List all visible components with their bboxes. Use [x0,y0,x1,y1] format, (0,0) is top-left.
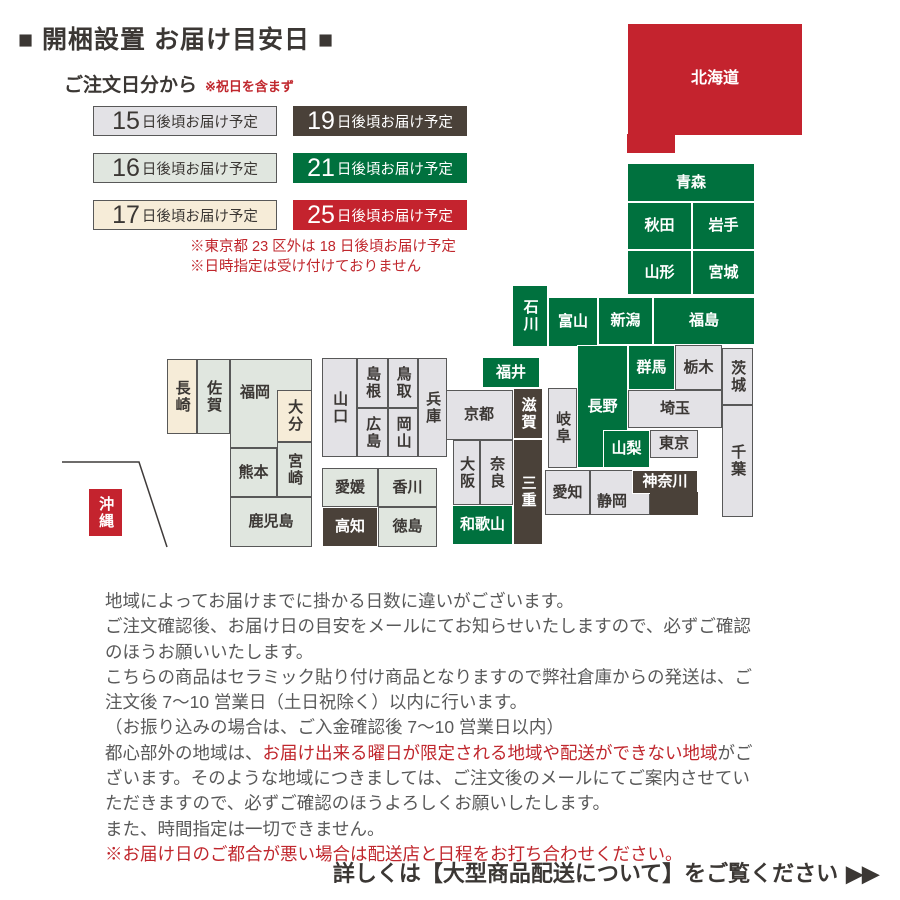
body-text-segment: （お振り込みの場合は、ご入金確認後 7～10 営業日以内） [105,717,564,737]
prefecture-label: 長野 [587,398,617,415]
prefecture-hokkaido-ext [627,134,675,153]
prefecture-saga: 佐賀 [197,359,230,434]
prefecture-aichi: 愛知 [545,470,590,515]
prefecture-ibaraki: 茨城 [722,348,753,405]
prefecture-yamanashi: 山梨 [603,430,650,468]
prefecture-gunma: 群馬 [628,345,675,390]
prefecture-label: 高知 [335,518,365,535]
prefecture-fukui: 福井 [482,357,540,388]
prefecture-label: 愛媛 [335,479,365,496]
prefecture-kagoshima: 鹿児島 [230,497,312,547]
body-line-4: こちらの商品はセラミック貼り付け商品となりますので弊社倉庫からの発送は、ご [105,665,805,690]
prefecture-label: 沖縄 [97,496,114,530]
prefecture-okinawa: 沖縄 [88,488,123,537]
prefecture-label: 宮崎 [286,453,303,487]
prefecture-label: 東京 [659,435,689,452]
prefecture-niigata: 新潟 [598,297,653,345]
prefecture-label: 三重 [519,475,536,509]
prefecture-label: 青森 [676,174,706,191]
body-text-segment: 地域によってお届けまでに掛かる日数に違いがございます。 [105,591,574,611]
prefecture-label: 愛知 [552,484,582,501]
prefecture-hokkaido: 北海道 [627,23,803,136]
prefecture-label: 山形 [644,264,674,281]
prefecture-nagasaki: 長崎 [167,359,197,434]
double-arrow-icon: ▶▶ [846,861,878,886]
prefecture-hyogo: 兵庫 [418,358,447,457]
body-line-9: ただきますので、必ずご確認のほうよろしくお願いしたします。 [105,791,805,816]
prefecture-label: 山梨 [611,440,641,457]
delivery-notes-paragraph: 地域によってお届けまでに掛かる日数に違いがございます。ご注文確認後、お届け日の目… [105,589,805,867]
prefecture-label: 北海道 [691,70,739,88]
prefecture-mie: 三重 [513,439,543,545]
prefecture-label: 佐賀 [205,380,222,414]
prefecture-label: 滋賀 [519,397,536,431]
prefecture-chiba: 千葉 [722,405,753,517]
prefecture-label: 徳島 [392,518,422,535]
prefecture-label: 岡山 [394,416,411,450]
prefecture-label: 大阪 [458,456,475,490]
prefecture-label: 奈良 [488,456,505,490]
prefecture-label: 京都 [464,406,494,423]
prefecture-label: 栃木 [683,359,713,376]
prefecture-aomori: 青森 [627,163,755,202]
prefecture-kyoto: 京都 [445,390,513,440]
prefecture-kanagawa-ext [650,492,698,515]
prefecture-label: 熊本 [238,464,268,481]
prefecture-tokushima: 徳島 [378,507,437,547]
prefecture-label: 和歌山 [460,516,505,533]
prefecture-label: 福岡 [240,384,270,401]
body-line-6: （お振り込みの場合は、ご入金確認後 7～10 営業日以内） [105,715,805,740]
prefecture-hiroshima: 広島 [357,408,388,457]
body-text-segment: のほうお願いいたします。 [105,642,313,662]
prefecture-label: 茨城 [729,360,746,394]
prefecture-label: 静岡 [597,493,627,510]
prefecture-label: 鳥取 [394,366,411,400]
prefecture-akita: 秋田 [627,202,692,250]
prefecture-miyazaki: 宮崎 [277,442,312,497]
body-line-10: また、時間指定は一切できません。 [105,817,805,842]
prefecture-label: 埼玉 [660,400,690,417]
prefecture-gifu: 岐阜 [548,388,577,468]
prefecture-nara: 奈良 [480,440,513,505]
body-text-segment: こちらの商品はセラミック貼り付け商品となりますので弊社倉庫からの発送は、ご [105,667,752,687]
prefecture-label: 富山 [558,313,588,330]
prefecture-kochi: 高知 [322,507,378,547]
body-text-segment: ただきますので、必ずご確認のほうよろしくお願いしたします。 [105,793,610,813]
prefecture-label: 石川 [521,299,538,333]
footer-link-line: 詳しくは【大型商品配送について】をご覧ください▶▶ [333,856,878,888]
prefecture-tochigi: 栃木 [675,345,722,390]
delivery-info-page: ■ 開梱設置 お届け目安日 ■ ご注文日分から※祝日を含まず 15日後頃お届け予… [0,0,900,900]
prefecture-shimane: 島根 [357,358,388,408]
prefecture-yamaguchi: 山口 [322,358,357,457]
prefecture-label: 神奈川 [642,473,687,490]
prefecture-label: 広島 [364,416,381,450]
prefecture-label: 秋田 [644,217,674,234]
prefecture-label: 鹿児島 [248,513,293,530]
prefecture-kanagawa: 神奈川 [632,470,698,494]
prefecture-label: 大分 [286,399,303,433]
prefecture-label: 山口 [331,391,348,425]
prefecture-label: 岩手 [708,217,738,234]
body-text-segment: がご [718,743,753,763]
prefecture-tottori: 鳥取 [388,358,418,408]
prefecture-label: 千葉 [729,444,746,478]
prefecture-shiga: 滋賀 [513,388,543,439]
body-text-segment: ご注文確認後、お届け日の目安をメールにてお知らせいたしますので、必ずご確認 [105,616,751,636]
prefecture-kagawa: 香川 [378,468,437,507]
prefecture-yamagata: 山形 [627,250,692,295]
prefecture-label: 岐阜 [554,411,571,445]
prefecture-label: 福井 [496,364,526,381]
body-line-1: 地域によってお届けまでに掛かる日数に違いがございます。 [105,589,805,614]
body-text-segment: ざいます。そのような地域につきましては、ご注文後のメールにてご案内させてい [105,768,750,788]
prefecture-iwate: 岩手 [692,202,755,250]
prefecture-wakayama: 和歌山 [452,505,513,545]
prefecture-label: 長崎 [173,380,190,414]
prefecture-label: 新潟 [610,312,640,329]
prefecture-label: 香川 [392,479,422,496]
prefecture-label: 群馬 [636,359,666,376]
body-line-3: のほうお願いいたします。 [105,640,805,665]
body-line-5: 注文後 7～10 営業日（土日祝除く）以内に行います。 [105,690,805,715]
prefecture-saitama: 埼玉 [628,390,722,428]
prefecture-osaka: 大阪 [453,440,480,505]
body-text-red-segment: お届け出来る曜日が限定される地域や配送ができない地域 [263,743,718,763]
prefecture-miyagi: 宮城 [692,250,755,295]
footer-text: 詳しくは【大型商品配送について】をご覧ください [333,861,838,886]
body-line-2: ご注文確認後、お届け日の目安をメールにてお知らせいたしますので、必ずご確認 [105,614,805,639]
body-text-segment: 注文後 7～10 営業日（土日祝除く）以内に行います。 [105,692,527,712]
body-text-segment: 都心部外の地域は、 [105,743,263,763]
prefecture-kumamoto: 熊本 [230,448,277,497]
prefecture-tokyo: 東京 [650,430,698,458]
body-line-7: 都心部外の地域は、お届け出来る曜日が限定される地域や配送ができない地域がご [105,741,805,766]
body-text-segment: また、時間指定は一切できません。 [105,819,384,839]
prefecture-label: 島根 [364,366,381,400]
prefecture-label: 宮城 [708,264,738,281]
prefecture-okayama: 岡山 [388,408,418,457]
prefecture-ehime: 愛媛 [322,468,378,507]
body-line-8: ざいます。そのような地域につきましては、ご注文後のメールにてご案内させてい [105,766,805,791]
prefecture-label: 兵庫 [424,391,441,425]
prefecture-ishikawa: 石川 [512,285,548,347]
prefecture-oita: 大分 [277,390,312,442]
prefecture-toyama: 富山 [548,297,598,347]
prefecture-label: 福島 [689,312,719,329]
prefecture-fukushima: 福島 [653,297,755,345]
